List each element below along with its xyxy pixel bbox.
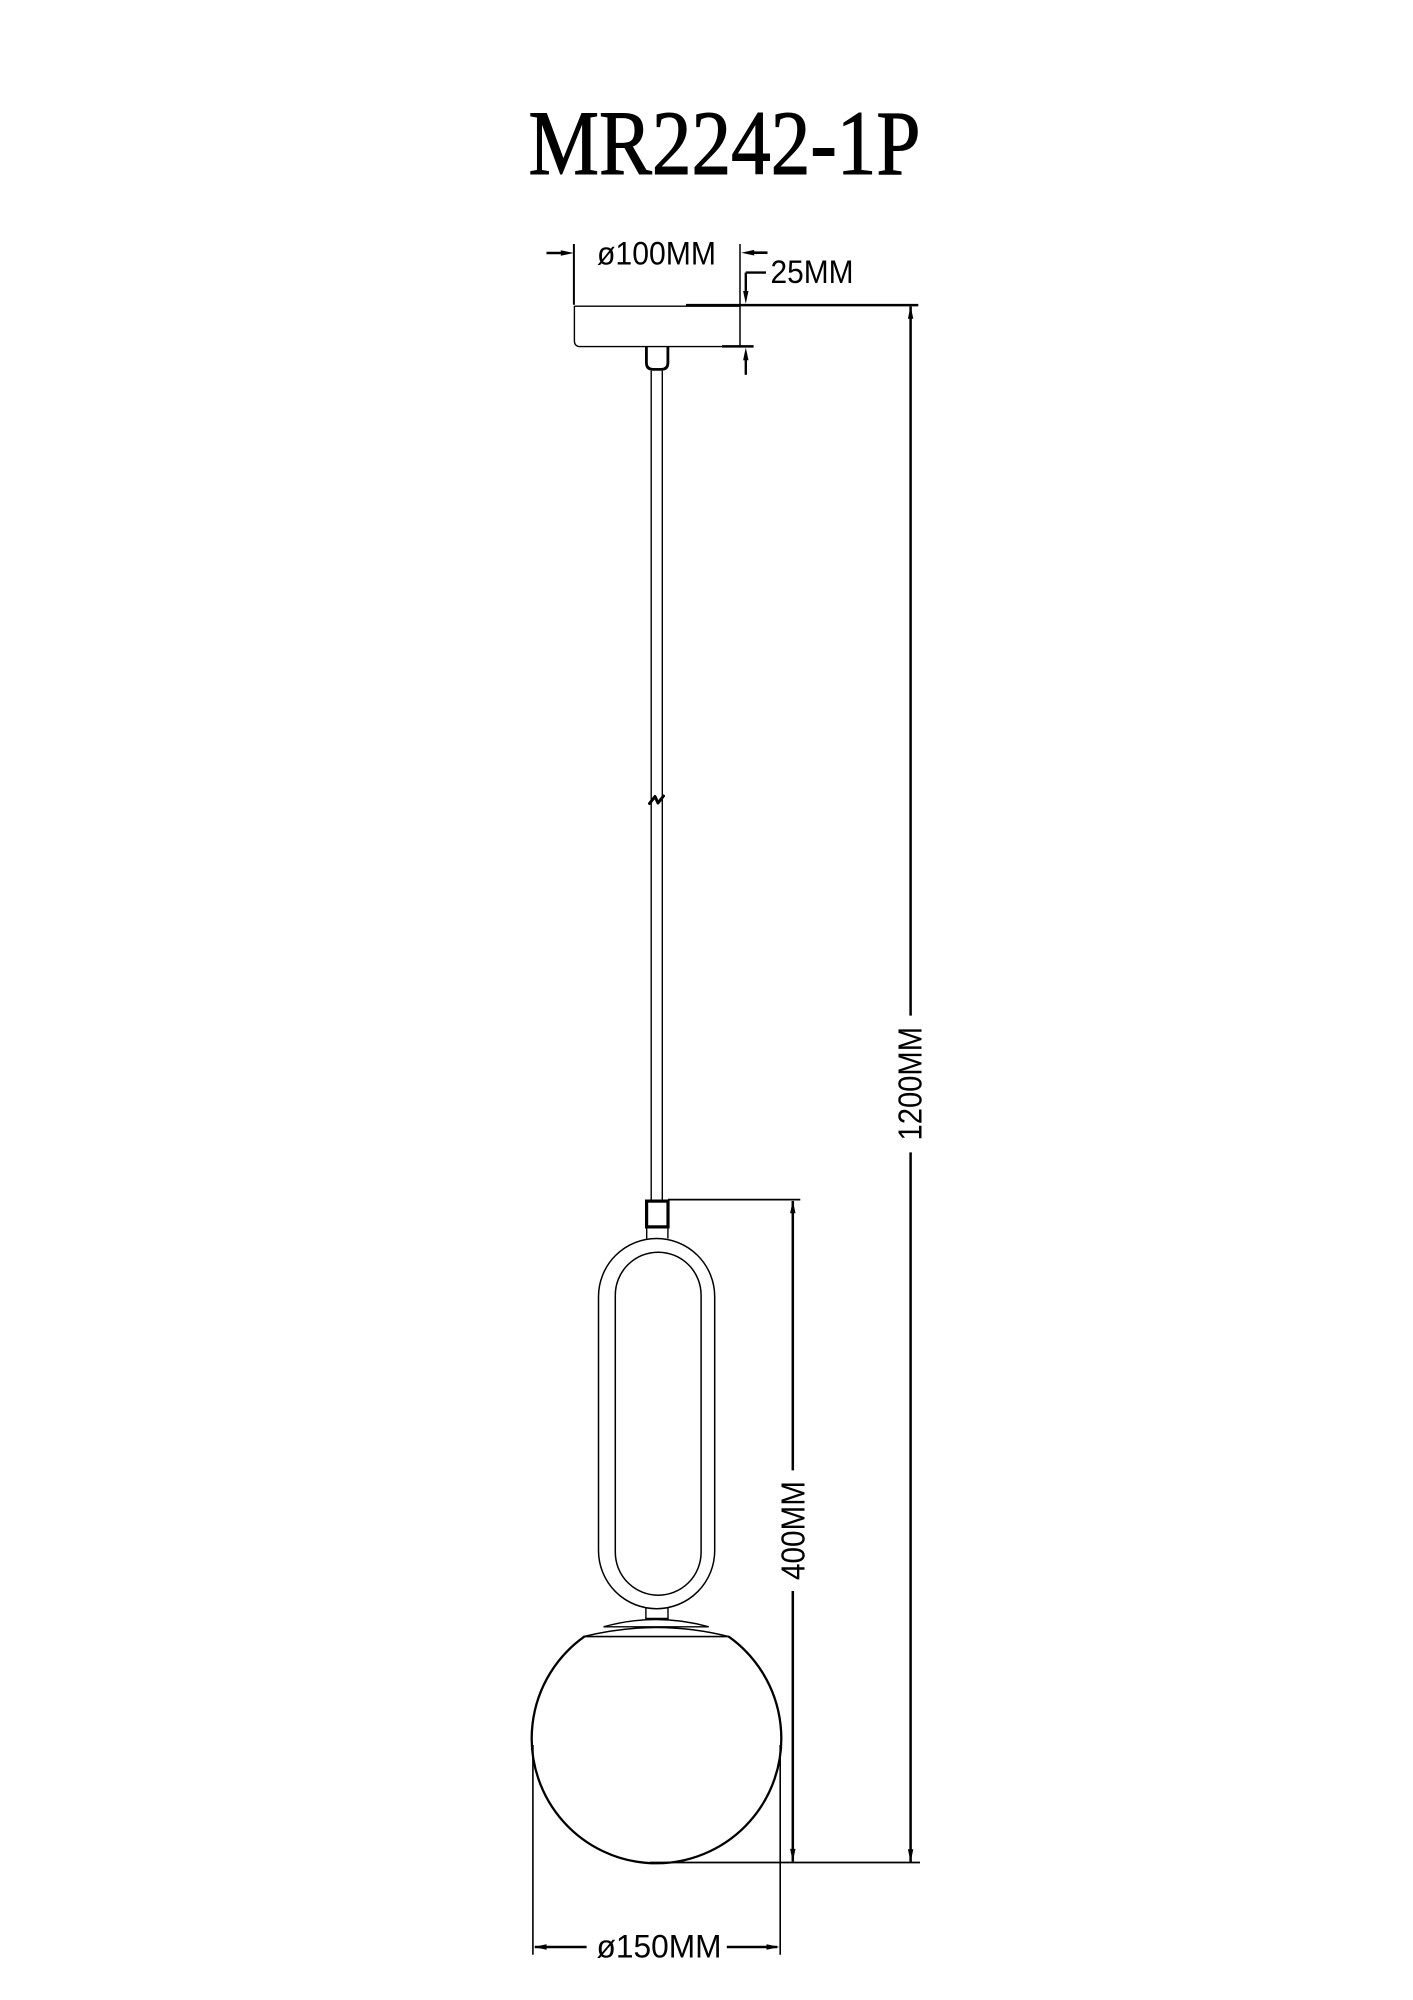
svg-text:1200MM: 1200MM [892,1027,929,1141]
svg-text:ø150MM: ø150MM [597,1929,722,1965]
svg-text:400MM: 400MM [775,1481,812,1580]
svg-text:MR2242-1P: MR2242-1P [529,92,921,194]
svg-text:25MM: 25MM [771,254,854,290]
svg-text:ø100MM: ø100MM [597,236,716,272]
